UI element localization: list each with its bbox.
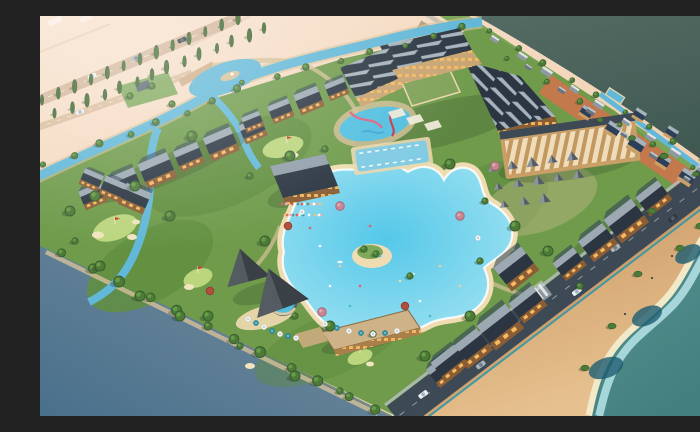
- resort-render: Photorealistic isometric 3D rendering of…: [40, 16, 700, 416]
- resort-render-figure: Resort Masterplan 3D Aerial Render Photo…: [40, 16, 700, 416]
